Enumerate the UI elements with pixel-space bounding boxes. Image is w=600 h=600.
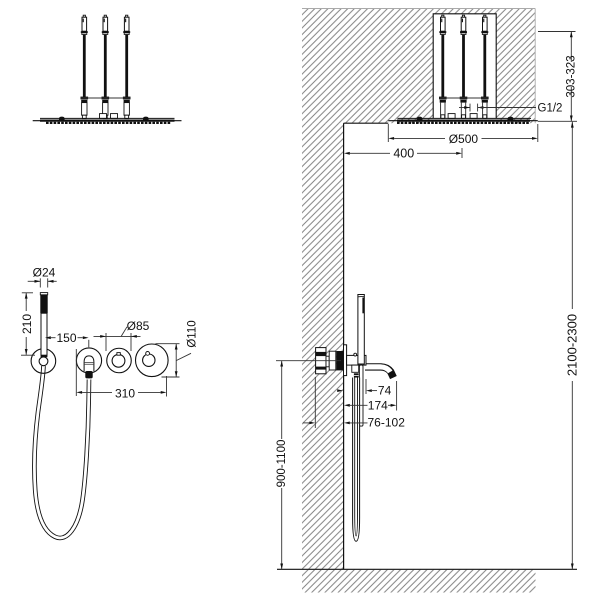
svg-text:150: 150 [56,331,76,345]
svg-text:303-323: 303-323 [566,55,578,97]
svg-text:900-1100: 900-1100 [276,440,288,488]
svg-text:Ø85: Ø85 [127,319,150,333]
svg-text:74: 74 [378,383,392,397]
svg-text:Ø500: Ø500 [449,132,479,146]
svg-text:2100-2300: 2100-2300 [565,314,580,376]
svg-text:Ø110: Ø110 [187,320,199,347]
svg-text:310: 310 [115,386,135,400]
svg-text:174: 174 [368,399,388,413]
svg-text:76-102: 76-102 [368,416,406,430]
svg-text:400: 400 [393,147,414,161]
svg-text:G1/2: G1/2 [538,103,563,115]
svg-text:210: 210 [20,314,34,334]
svg-text:Ø24: Ø24 [33,265,56,279]
